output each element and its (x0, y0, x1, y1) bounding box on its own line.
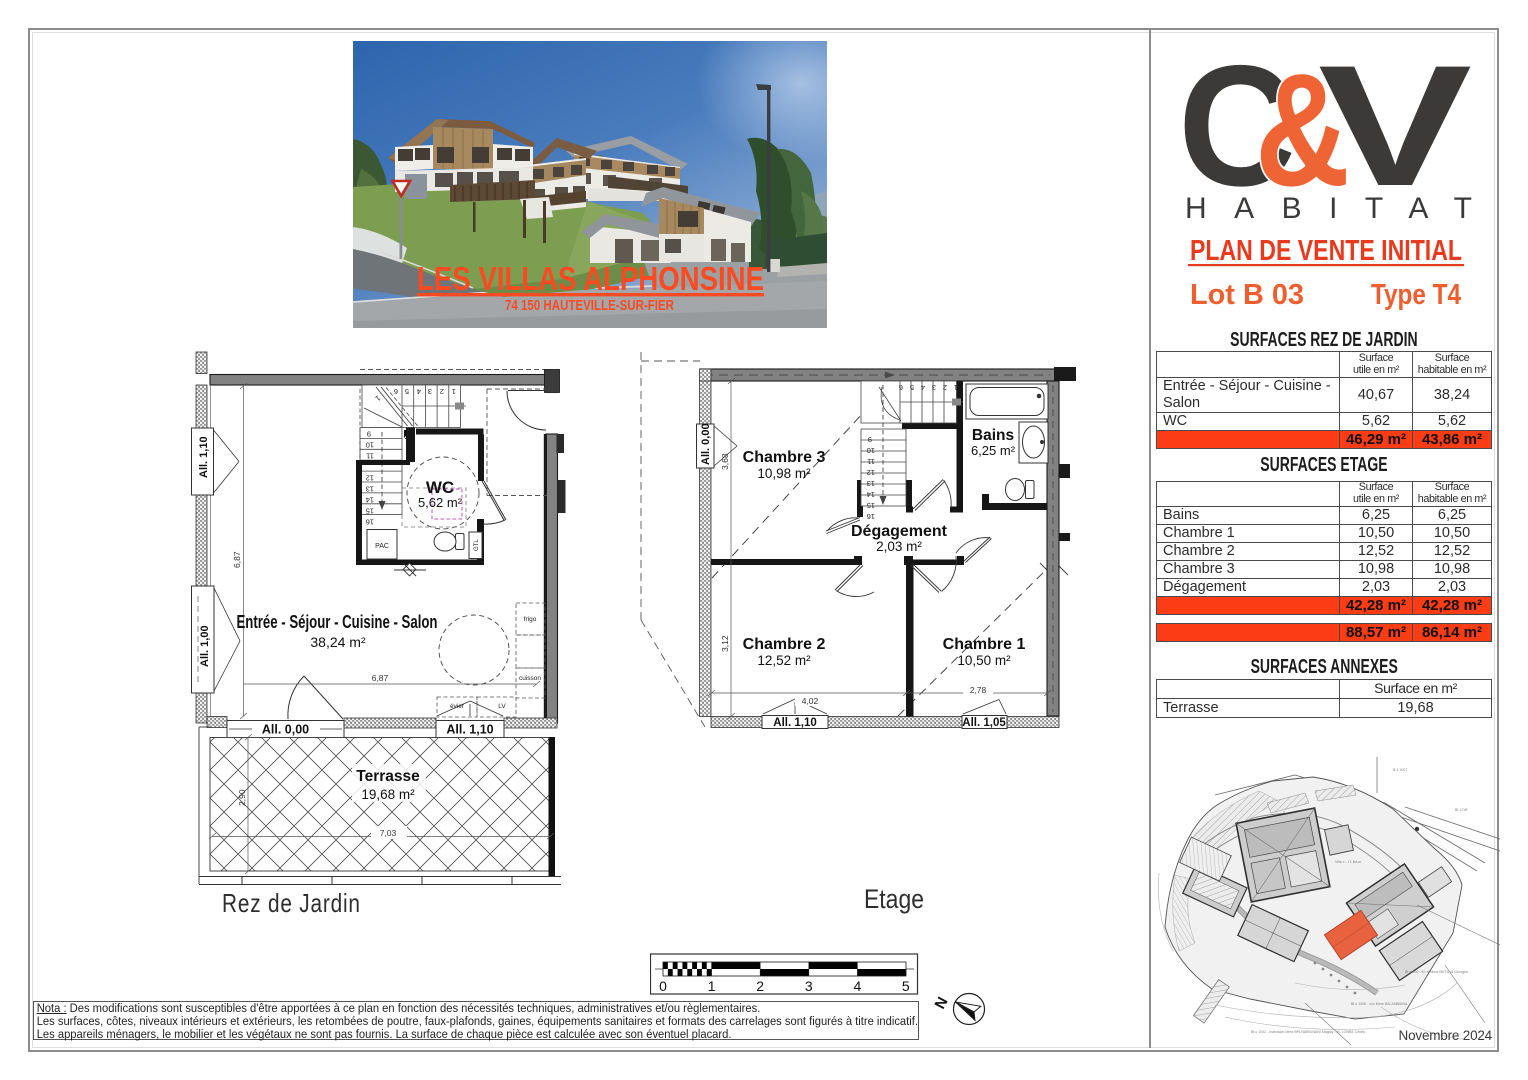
svg-text:74 150 HAUTEVILLE-SUR-FIER: 74 150 HAUTEVILLE-SUR-FIER (505, 298, 674, 314)
svg-text:N: N (932, 994, 952, 1012)
svg-text:LV: LV (498, 703, 506, 710)
svg-text:0: 0 (659, 978, 667, 994)
svg-text:Villa x - t 1 BA m: Villa x - t 1 BA m (1335, 860, 1361, 864)
svg-text:évier: évier (450, 703, 465, 710)
svg-text:Chambre 1: Chambre 1 (943, 636, 1026, 653)
svg-text:Lot B 03: Lot B 03 (1190, 279, 1304, 311)
svg-text:cuisson: cuisson (519, 675, 541, 682)
svg-text:LES VILLAS ALPHONSINE: LES VILLAS ALPHONSINE (417, 260, 764, 297)
svg-text:Bains: Bains (972, 427, 1014, 444)
svg-text:Chambre 2: Chambre 2 (743, 636, 826, 653)
svg-text:4,02: 4,02 (802, 696, 819, 706)
svg-text:PLAN DE VENTE INITIAL: PLAN DE VENTE INITIAL (1190, 235, 1462, 267)
svg-text:15: 15 (366, 507, 374, 516)
svg-text:Terrasse: Terrasse (356, 768, 420, 785)
svg-text:Bt n 100 - M. st Mme METAYA Ge: Bt n 100 - M. st Mme METAYA Georges (1405, 970, 1468, 974)
svg-text:11: 11 (366, 452, 374, 461)
svg-text:9: 9 (367, 430, 371, 439)
svg-text:16: 16 (867, 512, 875, 521)
svg-text:13: 13 (366, 485, 374, 494)
svg-text:Bt 1 DB: Bt 1 DB (1455, 808, 1468, 812)
svg-text:11: 11 (867, 457, 875, 466)
svg-text:GTL: GTL (474, 539, 480, 551)
svg-text:6,25 m²: 6,25 m² (971, 443, 1016, 458)
svg-text:Bt x 1006 - xxx Mme BALANBIANA: Bt x 1006 - xxx Mme BALANBIANA (1351, 1002, 1408, 1006)
svg-text:Entrée - Séjour - Cuisine - Sa: Entrée - Séjour - Cuisine - Salon (237, 611, 438, 632)
svg-text:1: 1 (452, 387, 456, 396)
svg-text:6: 6 (899, 383, 903, 392)
svg-text:7,03: 7,03 (380, 828, 397, 838)
svg-text:All. 1,10: All. 1,10 (198, 436, 210, 478)
svg-text:B 4 1007: B 4 1007 (1393, 768, 1407, 772)
svg-text:1: 1 (708, 978, 716, 994)
svg-text:1: 1 (954, 383, 958, 392)
svg-text:12: 12 (366, 474, 374, 483)
svg-text:2,78: 2,78 (970, 685, 987, 695)
svg-text:2: 2 (440, 387, 444, 396)
svg-text:Type T4: Type T4 (1371, 279, 1461, 311)
svg-text:10: 10 (366, 441, 374, 450)
svg-text:19,68 m²: 19,68 m² (361, 787, 415, 802)
svg-text:3,12: 3,12 (720, 635, 730, 652)
svg-text:6,87: 6,87 (232, 551, 242, 568)
svg-text:2: 2 (943, 383, 947, 392)
svg-text:3: 3 (932, 383, 936, 392)
svg-text:frigo: frigo (524, 616, 537, 623)
svg-text:PAC: PAC (375, 543, 389, 550)
svg-text:9: 9 (868, 435, 872, 444)
svg-text:13: 13 (867, 479, 875, 488)
svg-text:2: 2 (756, 978, 764, 994)
svg-text:14: 14 (366, 496, 374, 505)
svg-text:All. 1,10: All. 1,10 (446, 723, 493, 737)
svg-text:2,03 m²: 2,03 m² (876, 539, 922, 554)
svg-text:15: 15 (867, 501, 875, 510)
svg-text:14: 14 (867, 490, 875, 499)
svg-text:3: 3 (428, 387, 432, 396)
svg-text:6,87: 6,87 (372, 673, 389, 683)
svg-text:12: 12 (867, 468, 875, 477)
svg-text:5,62 m²: 5,62 m² (418, 495, 463, 510)
svg-text:3,68: 3,68 (720, 453, 730, 470)
svg-text:Dégagement: Dégagement (851, 523, 948, 540)
svg-text:All. 1,10: All. 1,10 (773, 717, 816, 729)
svg-text:10,98 m²: 10,98 m² (757, 466, 811, 481)
svg-text:All. 0,00: All. 0,00 (700, 423, 712, 465)
svg-text:4: 4 (417, 387, 421, 396)
svg-text:5: 5 (910, 383, 914, 392)
svg-text:5: 5 (405, 387, 409, 396)
svg-text:6: 6 (394, 387, 398, 396)
svg-text:5: 5 (902, 978, 910, 994)
svg-text:All. 1,05: All. 1,05 (962, 717, 1006, 729)
svg-text:10: 10 (867, 446, 875, 455)
svg-text:All. 0,00: All. 0,00 (262, 723, 309, 737)
svg-text:x: x (1283, 810, 1285, 814)
svg-text:12,52 m²: 12,52 m² (757, 653, 811, 668)
svg-text:2,90: 2,90 (237, 789, 247, 806)
svg-text:4: 4 (921, 383, 925, 392)
svg-text:3: 3 (805, 978, 813, 994)
svg-text:All. 1,00: All. 1,00 (199, 625, 211, 667)
svg-text:38,24 m²: 38,24 m² (310, 634, 366, 650)
svg-text:10,50 m²: 10,50 m² (957, 653, 1011, 668)
svg-text:4: 4 (854, 978, 862, 994)
svg-text:16: 16 (366, 518, 374, 527)
svg-text:Chambre 3: Chambre 3 (743, 449, 826, 466)
